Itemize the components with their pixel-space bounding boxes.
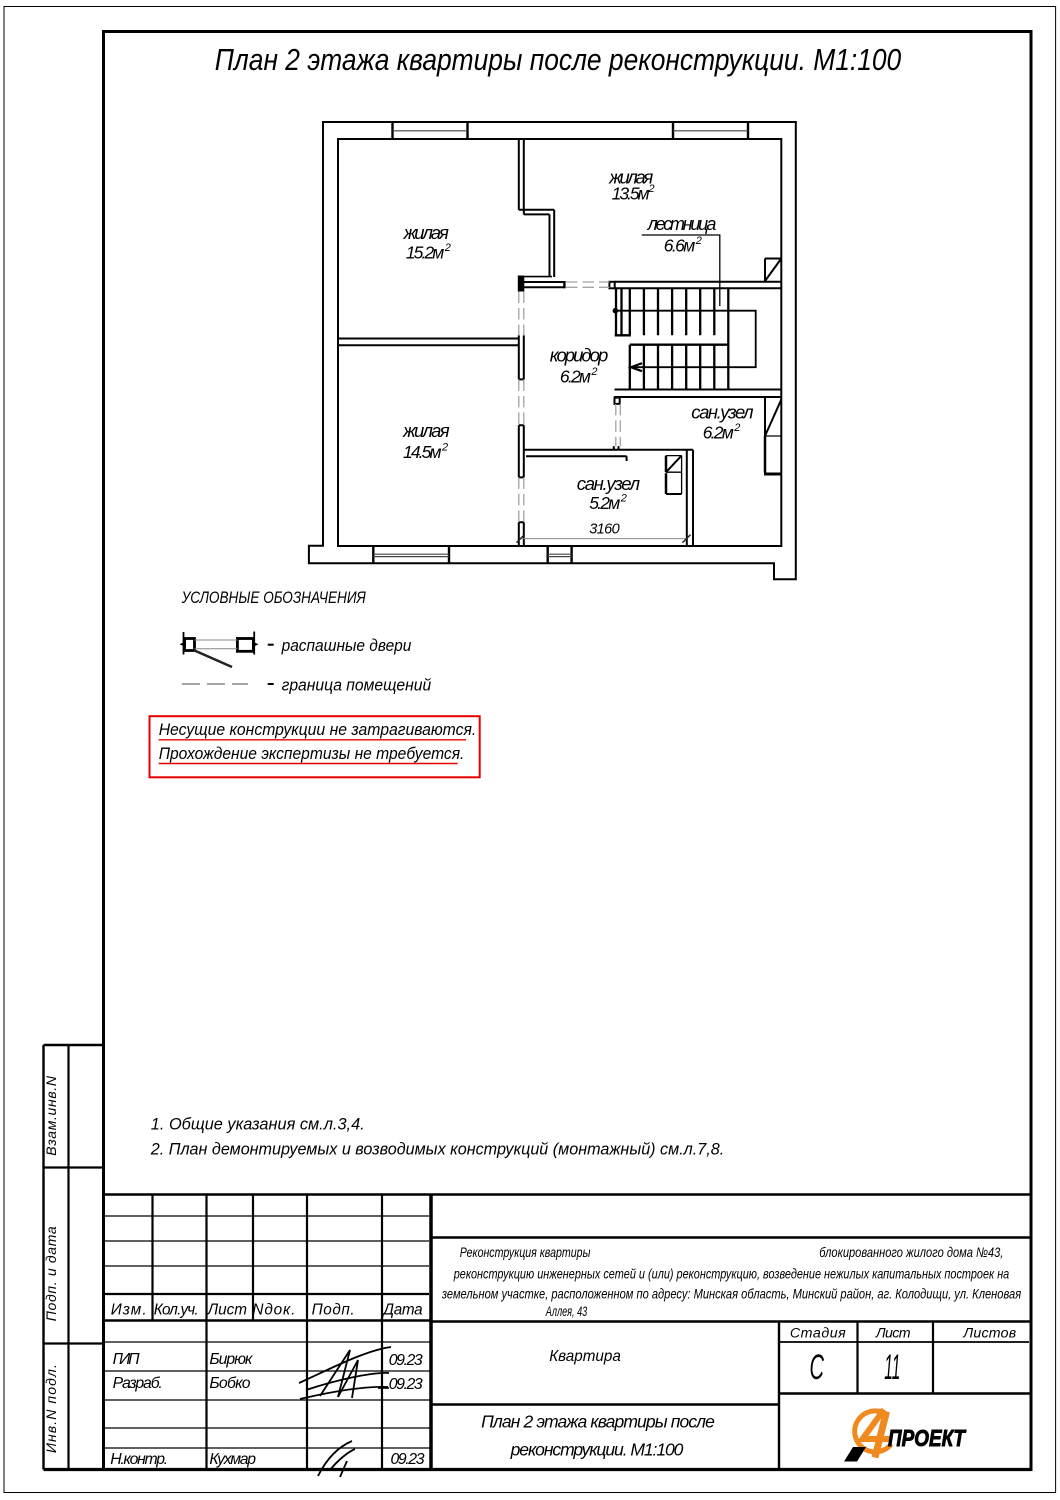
svg-text:Реконструкция квартиры: Реконструкция квартиры — [460, 1245, 591, 1260]
svg-text:Стадия: Стадия — [790, 1326, 846, 1342]
svg-text:ПРОЕКТ: ПРОЕКТ — [888, 1425, 967, 1451]
svg-text:Аллея, 43: Аллея, 43 — [545, 1304, 587, 1319]
svg-text:План 2 этажа квартиры после: План 2 этажа квартиры после — [481, 1412, 715, 1432]
svg-text:сан.узел: сан.узел — [577, 473, 641, 494]
svg-text:1. Общие указания см.л.3,4.: 1. Общие указания см.л.3,4. — [151, 1116, 365, 1134]
svg-text:Квартира: Квартира — [549, 1348, 621, 1365]
svg-text:распашные двери: распашные двери — [281, 637, 412, 655]
svg-text:жилая: жилая — [402, 420, 450, 441]
svg-text:коридор: коридор — [550, 345, 609, 366]
svg-text:УСЛОВНЫЕ ОБОЗНАЧЕНИЯ: УСЛОВНЫЕ ОБОЗНАЧЕНИЯ — [181, 589, 367, 607]
svg-text:09.23: 09.23 — [389, 1376, 423, 1393]
svg-text:сан.узел: сан.узел — [691, 402, 754, 423]
svg-text:жилая: жилая — [403, 222, 449, 243]
svg-text:реконструкцию инженерных сетей: реконструкцию инженерных сетей и (или) р… — [453, 1267, 1010, 1282]
svg-text:2: 2 — [695, 235, 702, 247]
svg-text:Кухмар: Кухмар — [209, 1451, 256, 1468]
svg-text:6.2м: 6.2м — [703, 423, 734, 443]
svg-text:3160: 3160 — [589, 522, 620, 538]
svg-text:09.23: 09.23 — [391, 1451, 425, 1468]
svg-text:граница помещений: граница помещений — [282, 676, 432, 694]
svg-text:6.2м: 6.2м — [560, 367, 591, 387]
svg-text:Бобко: Бобко — [209, 1375, 250, 1392]
svg-text:5.2м: 5.2м — [589, 493, 620, 513]
svg-text:Лист: Лист — [207, 1302, 248, 1319]
svg-text:Изм.: Изм. — [111, 1302, 147, 1319]
svg-text:09.23: 09.23 — [389, 1352, 423, 1369]
svg-text:14.5м: 14.5м — [403, 442, 442, 462]
svg-text:Несущие конструкции не затраги: Несущие конструкции не затрагиваются. — [159, 720, 477, 739]
svg-text:Подп.: Подп. — [312, 1302, 355, 1319]
svg-text:2: 2 — [441, 442, 448, 454]
svg-text:11: 11 — [884, 1348, 900, 1387]
svg-text:Взам.инв.N: Взам.инв.N — [43, 1075, 59, 1156]
svg-text:2: 2 — [733, 422, 740, 434]
svg-text:блокированного жилого дома №43: блокированного жилого дома №43, — [819, 1245, 1003, 1260]
svg-text:Лист: Лист — [875, 1326, 911, 1342]
svg-text:План 2 этажа квартиры после ре: План 2 этажа квартиры после реконструкци… — [215, 42, 901, 77]
svg-text:С: С — [810, 1348, 825, 1387]
svg-text:земельном участке, расположенн: земельном участке, расположенном по адре… — [441, 1287, 1022, 1302]
svg-text:2: 2 — [590, 366, 597, 378]
svg-text:13.5м: 13.5м — [612, 184, 650, 204]
svg-text:Nдок.: Nдок. — [252, 1302, 295, 1319]
svg-text:реконструкции. М1:100: реконструкции. М1:100 — [510, 1440, 684, 1460]
svg-text:Прохождение экспертизы не треб: Прохождение экспертизы не требуется. — [159, 744, 465, 763]
svg-text:2. План демонтируемых и возво: 2. План демонтируемых и возводимых конст… — [150, 1141, 724, 1159]
svg-text:Подп. и дата: Подп. и дата — [43, 1226, 59, 1321]
svg-text:Дата: Дата — [381, 1302, 422, 1319]
svg-text:ГИП: ГИП — [113, 1351, 141, 1368]
svg-text:Листов: Листов — [962, 1326, 1016, 1342]
svg-text:Инв.N подл.: Инв.N подл. — [43, 1364, 59, 1453]
svg-text:6.6м: 6.6м — [664, 236, 696, 256]
svg-text:Н.контр.: Н.контр. — [110, 1451, 168, 1468]
svg-text:Бирюк: Бирюк — [209, 1351, 253, 1368]
svg-text:Кол.уч.: Кол.уч. — [154, 1302, 199, 1319]
svg-text:лестница: лестница — [647, 214, 717, 234]
svg-text:Разраб.: Разраб. — [113, 1375, 163, 1392]
svg-text:15.2м: 15.2м — [406, 243, 445, 263]
svg-text:2: 2 — [444, 242, 451, 254]
svg-text:2: 2 — [648, 183, 655, 195]
svg-text:2: 2 — [620, 493, 627, 505]
